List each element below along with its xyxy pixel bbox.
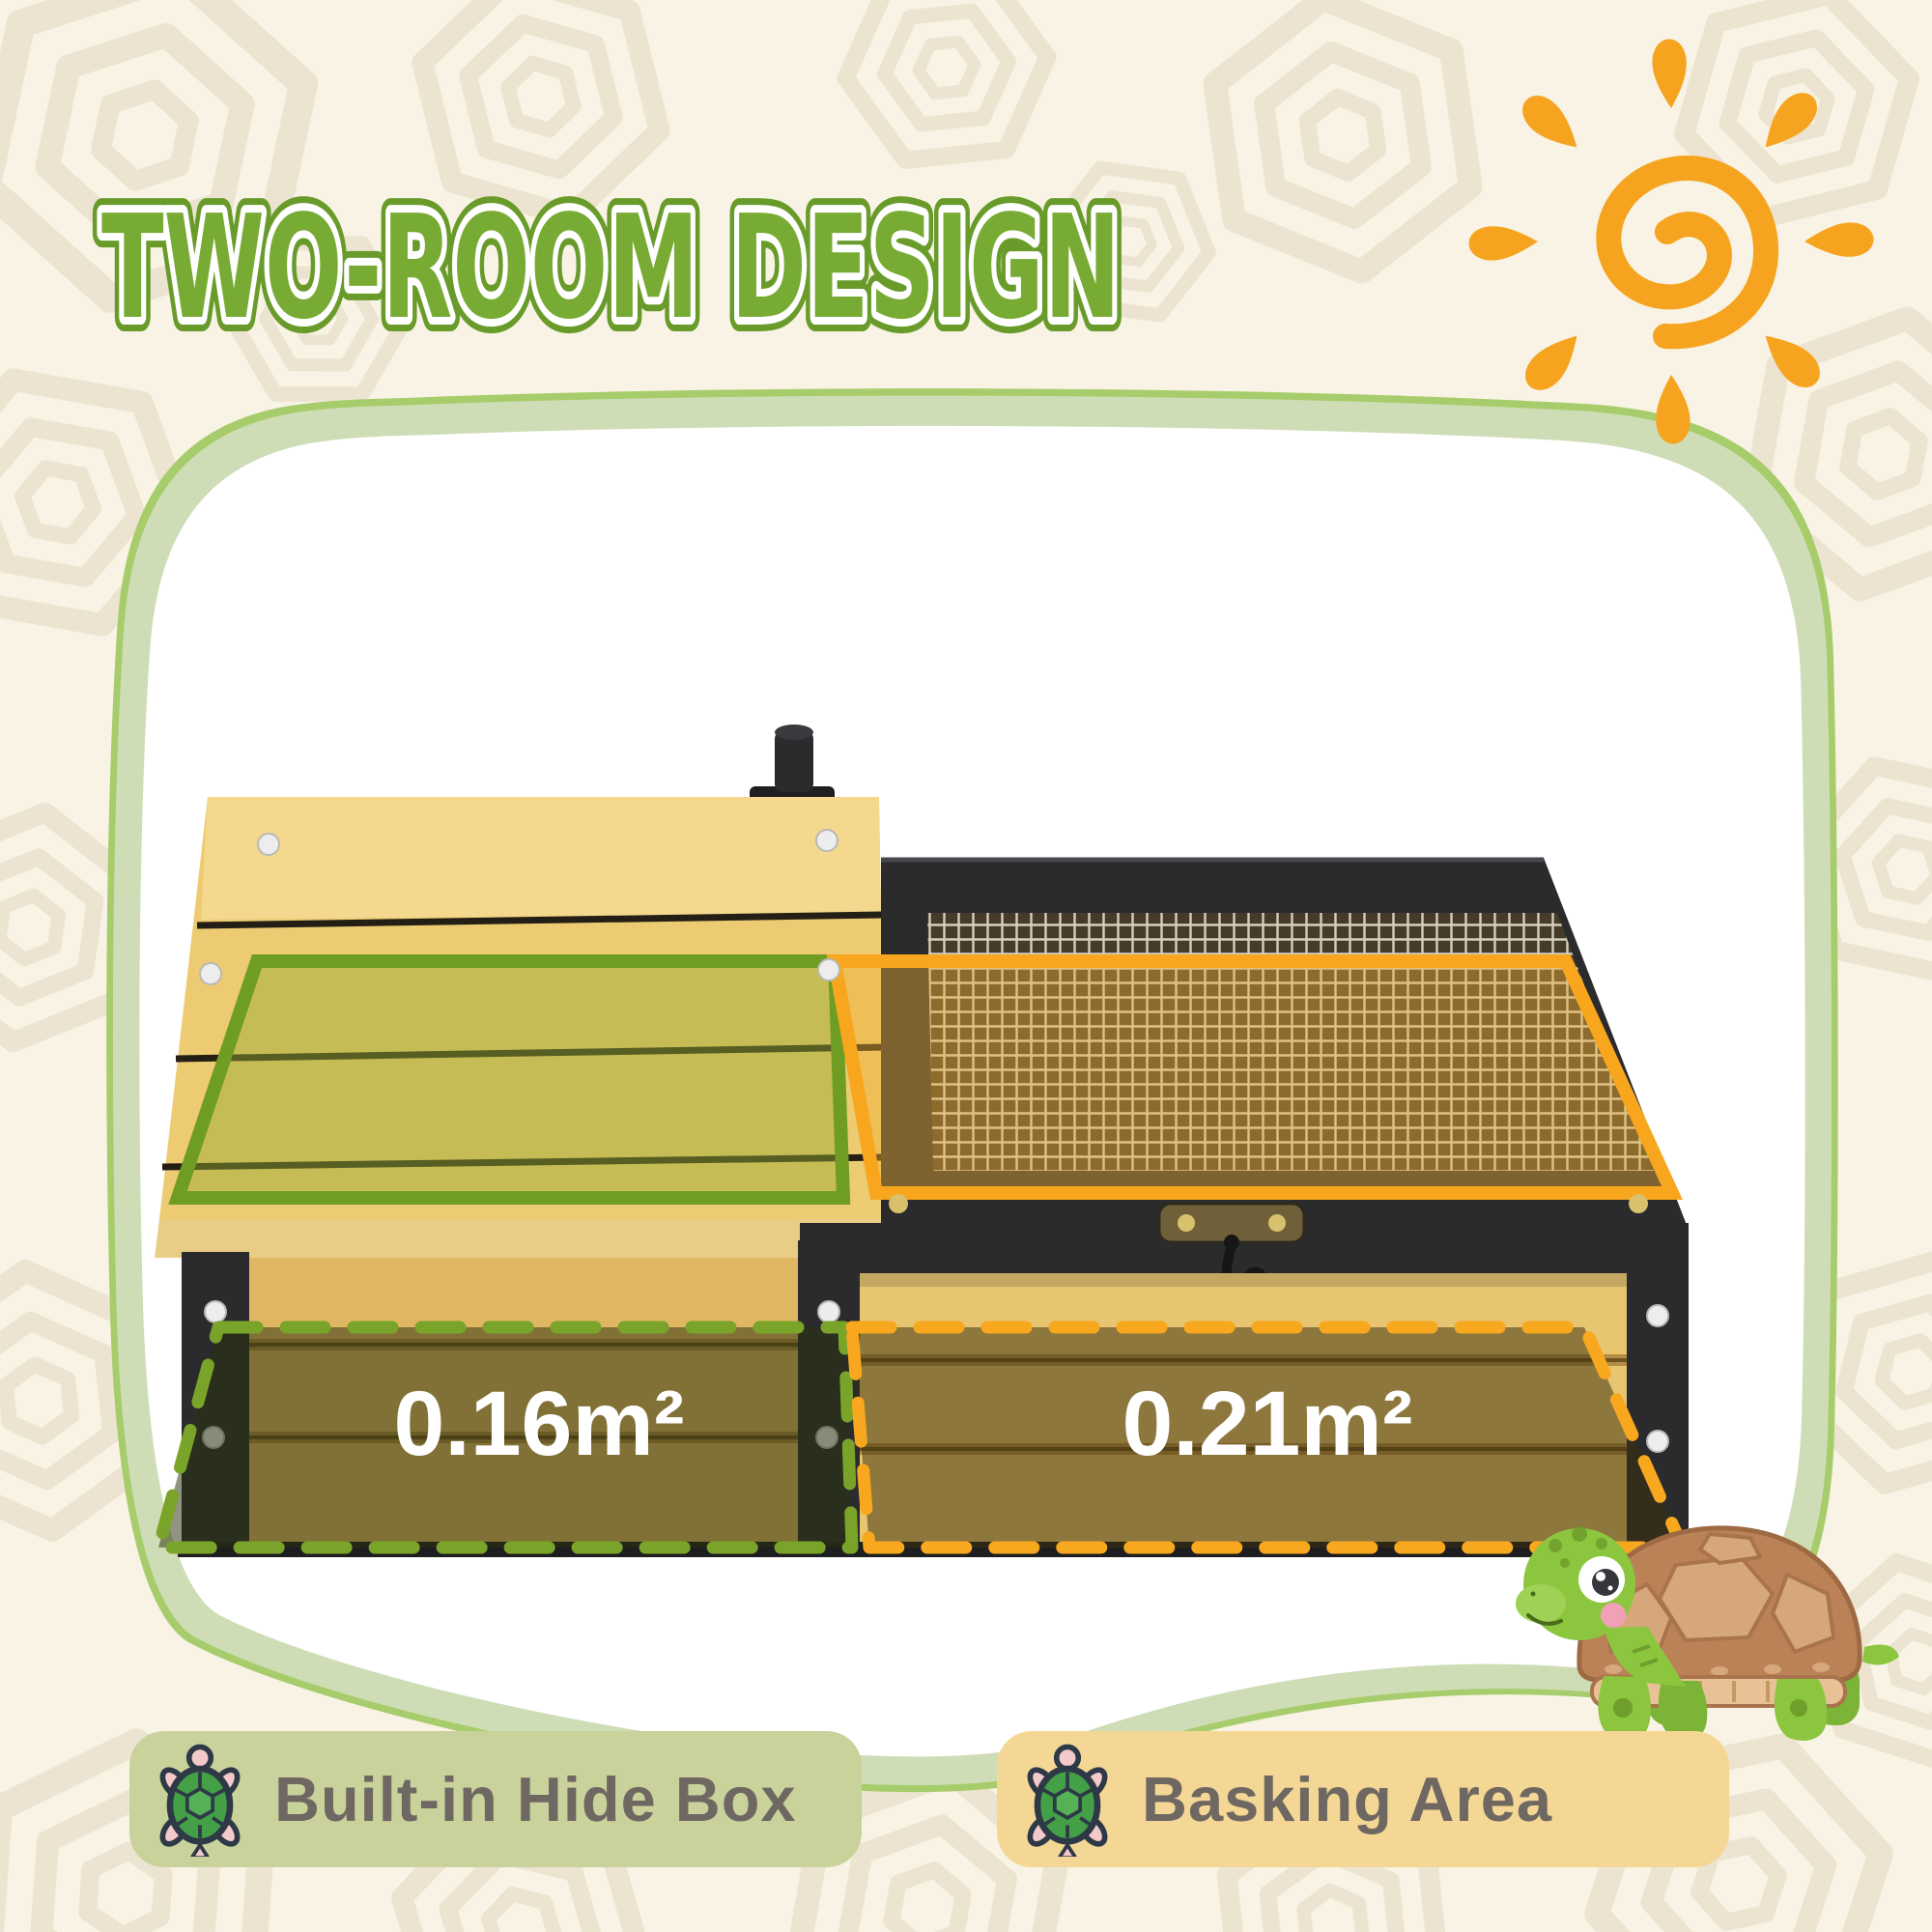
badge-hide-box: Built-in Hide Box [129,1731,862,1867]
basking-top-outline [835,961,1672,1193]
title-text: TWO-ROOM DESIGN [101,185,1121,351]
hide-box-area-label: 0.16m² [393,1373,684,1475]
turtle-icon [1022,1743,1113,1857]
turtle-icon [155,1743,245,1857]
infographic-page: TWO-ROOM DESIGN TWO-ROOM DESIGN TWO-ROOM… [0,0,1932,1932]
product-illustration: 0.16m² 0.21m² [155,715,1690,1565]
badge-basking-area: Basking Area [997,1731,1729,1867]
page-title: TWO-ROOM DESIGN TWO-ROOM DESIGN TWO-ROOM… [87,155,1188,367]
basking-area-label: 0.21m² [1122,1373,1412,1475]
sun-spiral [1608,168,1766,336]
tortoise-mascot [1488,1449,1932,1758]
sun-icon [1468,19,1874,464]
roof-fascia [155,1219,887,1258]
badge-basking-area-label: Basking Area [1142,1763,1552,1835]
badge-hide-box-label: Built-in Hide Box [274,1763,797,1835]
floor-areas: 0.16m² 0.21m² [158,1327,1683,1548]
cartoon-tortoise [1516,1526,1899,1741]
hide-box-top-outline [178,961,843,1198]
